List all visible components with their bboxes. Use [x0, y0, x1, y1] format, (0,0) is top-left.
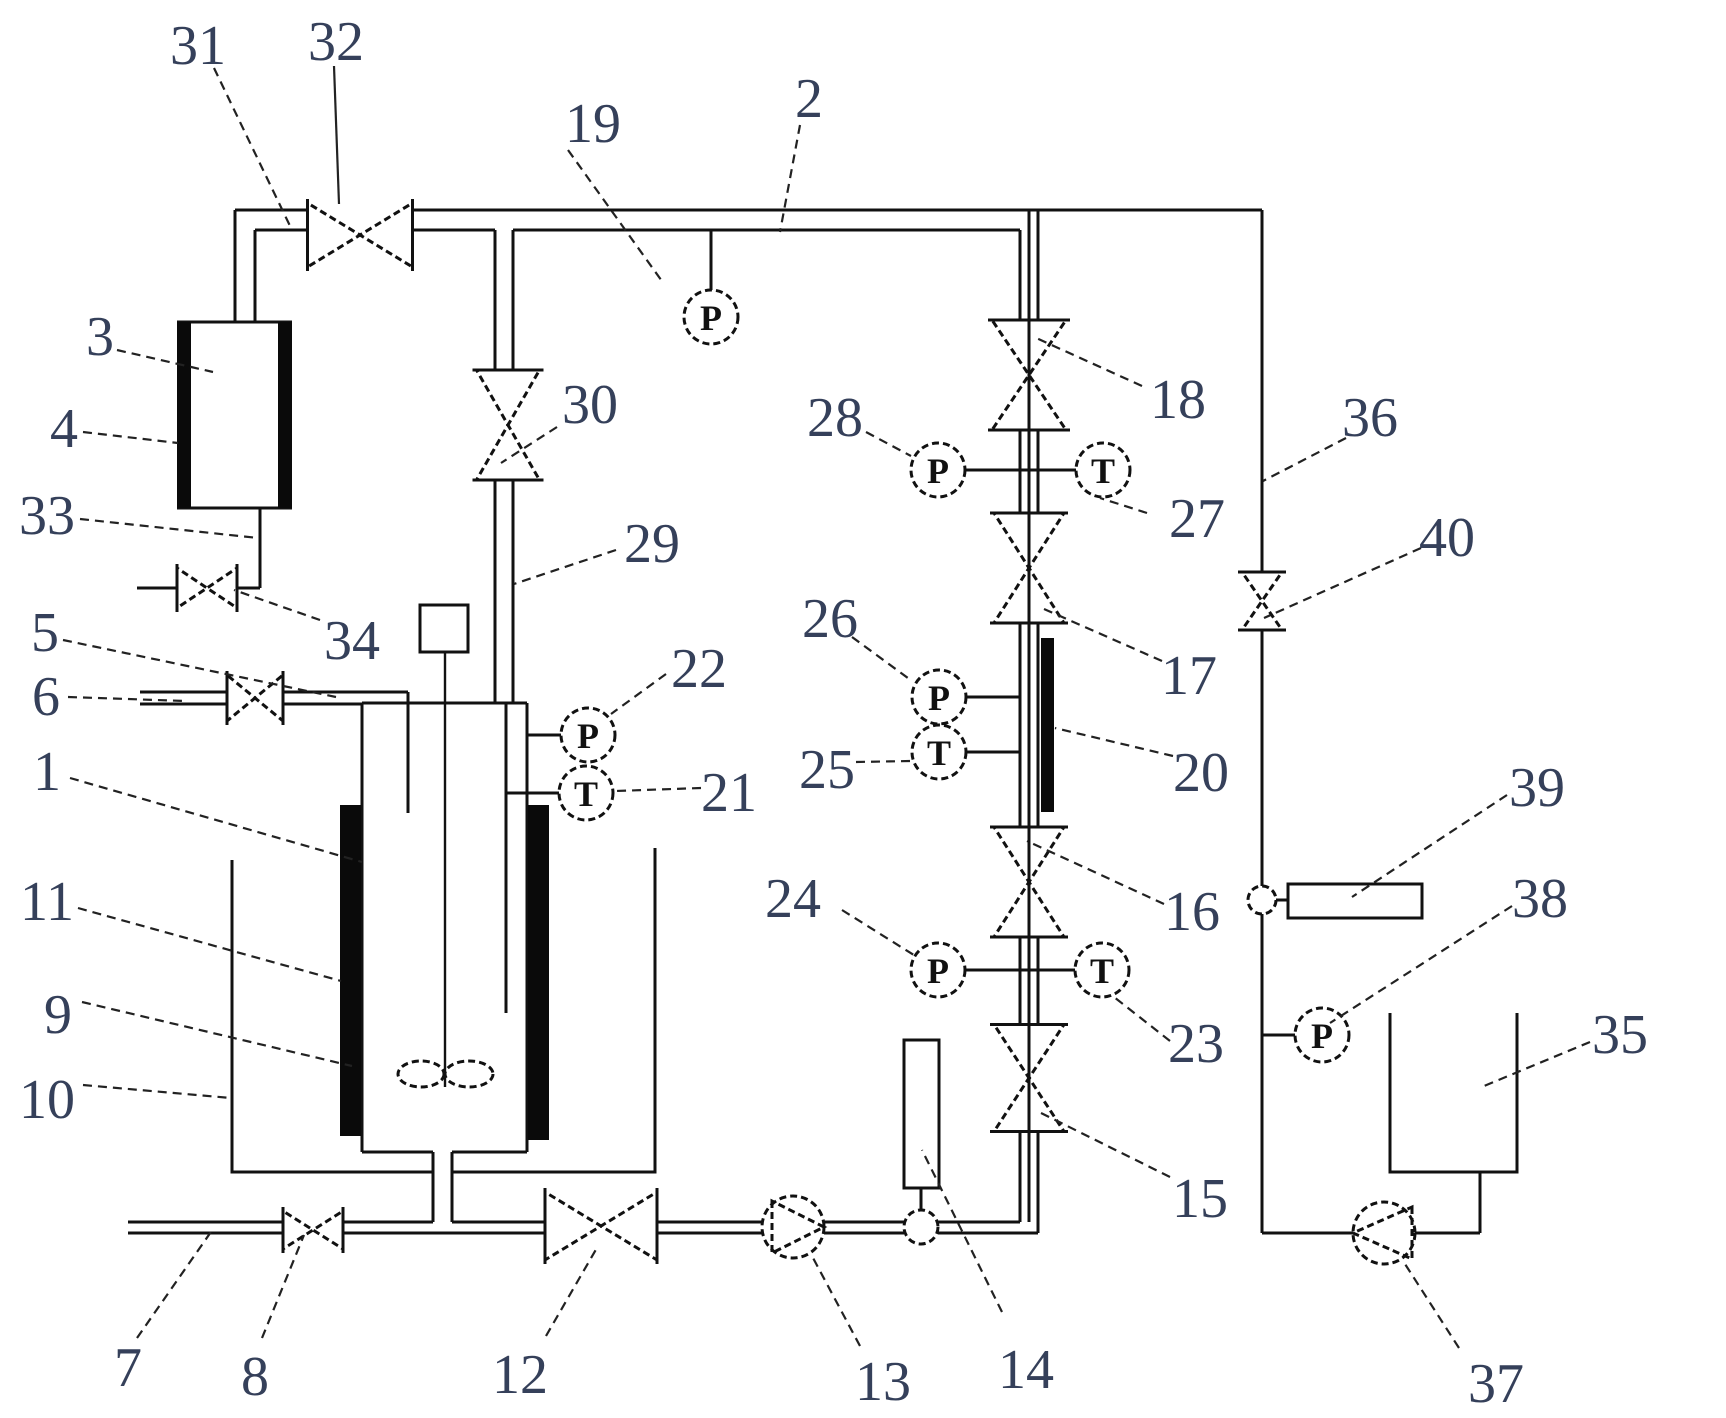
vessel-3-wall-left — [177, 322, 191, 508]
ref-label-7: 7 — [114, 1229, 213, 1399]
ref-label-14: 14 — [922, 1150, 1054, 1401]
temperature-gauge-21: T — [559, 766, 613, 820]
temperature-gauge-27: T — [1076, 443, 1130, 497]
leader-line-19 — [568, 150, 664, 284]
impeller-9-right-blade — [445, 1061, 493, 1087]
leader-line-16 — [1027, 841, 1164, 904]
label-text-40: 40 — [1419, 507, 1475, 569]
label-text-16: 16 — [1164, 881, 1220, 943]
valve-34 — [177, 564, 237, 612]
temperature-gauge-23: T — [1075, 943, 1129, 997]
valve-30 — [473, 370, 544, 480]
label-text-6: 6 — [32, 666, 60, 728]
pump-13 — [762, 1196, 824, 1258]
label-text-25: 25 — [799, 739, 855, 801]
ref-label-23: 23 — [1114, 997, 1224, 1075]
label-text-34: 34 — [324, 610, 380, 672]
label-text-20: 20 — [1173, 742, 1229, 804]
label-text-22: 22 — [671, 638, 727, 700]
water-bath-10 — [232, 848, 655, 1172]
ref-label-26: 26 — [802, 588, 912, 681]
reference-labels-layer: 3132192343334561119107812131429302221282… — [19, 11, 1648, 1415]
patent-piping-diagram: PPTPTPTPTP 31321923433345611191078121314… — [0, 0, 1726, 1418]
ref-label-1: 1 — [33, 741, 362, 862]
ref-label-25: 25 — [799, 739, 911, 801]
label-text-5: 5 — [31, 602, 59, 664]
ref-label-5: 5 — [31, 602, 336, 697]
pumps-layer — [762, 1196, 1415, 1264]
label-text-11: 11 — [20, 871, 74, 933]
leader-line-30 — [501, 427, 557, 463]
leader-line-4 — [83, 432, 178, 443]
ref-label-34: 34 — [234, 590, 380, 672]
ref-label-35: 35 — [1484, 1004, 1648, 1086]
label-text-4: 4 — [50, 398, 78, 460]
leader-line-12 — [546, 1246, 598, 1336]
ref-label-18: 18 — [1034, 337, 1206, 431]
leader-line-20 — [1055, 728, 1173, 756]
label-text-3: 3 — [86, 306, 114, 368]
label-text-14: 14 — [998, 1339, 1054, 1401]
valve-12 — [545, 1188, 657, 1264]
leader-line-38 — [1330, 906, 1512, 1023]
ref-label-32: 32 — [308, 11, 364, 204]
ref-label-28: 28 — [807, 387, 911, 456]
label-text-12: 12 — [492, 1344, 548, 1406]
temperature-gauge-27-letter: T — [1091, 451, 1115, 491]
leader-line-27 — [1100, 498, 1147, 513]
heating-band-20 — [1041, 638, 1054, 812]
ref-label-2: 2 — [780, 68, 823, 232]
label-text-31: 31 — [170, 15, 226, 77]
leader-line-39 — [1352, 795, 1507, 897]
label-text-23: 23 — [1168, 1013, 1224, 1075]
label-text-1: 1 — [33, 741, 61, 803]
ref-label-21: 21 — [616, 762, 757, 824]
label-text-13: 13 — [855, 1351, 911, 1413]
label-text-37: 37 — [1468, 1353, 1524, 1415]
label-text-29: 29 — [624, 513, 680, 575]
ref-label-16: 16 — [1027, 841, 1220, 943]
ref-label-11: 11 — [20, 871, 341, 981]
leader-line-17 — [1044, 609, 1162, 661]
label-text-27: 27 — [1169, 488, 1225, 550]
leader-line-25 — [856, 761, 911, 762]
leader-line-22 — [611, 674, 666, 714]
junction-line-36 — [1248, 886, 1276, 914]
pressure-gauge-19-letter: P — [700, 298, 722, 338]
ref-label-8: 8 — [241, 1235, 304, 1408]
ref-label-29: 29 — [514, 513, 680, 584]
ref-label-31: 31 — [170, 15, 291, 228]
label-text-28: 28 — [807, 387, 863, 449]
leader-line-28 — [866, 432, 911, 456]
ref-label-13: 13 — [812, 1256, 911, 1413]
label-text-18: 18 — [1150, 369, 1206, 431]
vessel-3-wall-right — [278, 322, 292, 508]
label-text-36: 36 — [1342, 387, 1398, 449]
leader-line-15 — [1037, 1111, 1170, 1177]
temperature-gauge-23-letter: T — [1090, 951, 1114, 991]
leader-line-31 — [214, 68, 291, 228]
label-text-9: 9 — [44, 984, 72, 1046]
ref-label-36: 36 — [1263, 387, 1398, 481]
stirrer-motor-box — [420, 605, 468, 652]
label-text-32: 32 — [308, 11, 364, 73]
ref-label-3: 3 — [86, 306, 213, 372]
leader-line-7 — [137, 1229, 213, 1338]
heating-band-11-left — [340, 805, 361, 1136]
buffer-vessel-3 — [177, 322, 292, 508]
junction-flowmeter-tap — [904, 1210, 938, 1244]
ref-label-27: 27 — [1100, 488, 1225, 550]
pressure-gauge-26: P — [912, 670, 966, 724]
pump-impeller-icon — [1353, 1207, 1412, 1259]
ref-label-24: 24 — [765, 868, 917, 957]
label-text-39: 39 — [1509, 757, 1565, 819]
ref-label-40: 40 — [1264, 507, 1475, 618]
valve-32 — [308, 199, 413, 271]
ref-label-37: 37 — [1405, 1264, 1524, 1415]
leader-line-35 — [1484, 1042, 1590, 1086]
valve-40 — [1238, 572, 1286, 630]
ref-label-30: 30 — [501, 374, 618, 463]
pump-impeller-icon — [772, 1201, 824, 1253]
leader-line-36 — [1263, 438, 1346, 481]
label-text-35: 35 — [1592, 1004, 1648, 1066]
pressure-gauge-22-letter: P — [577, 716, 599, 756]
pressure-gauge-28: P — [911, 443, 965, 497]
label-text-8: 8 — [241, 1346, 269, 1408]
label-text-38: 38 — [1512, 868, 1568, 930]
leader-line-6 — [68, 697, 186, 701]
leader-line-40 — [1264, 548, 1421, 618]
ref-label-12: 12 — [492, 1246, 598, 1406]
ref-label-9: 9 — [44, 984, 352, 1066]
leader-line-1 — [70, 778, 362, 862]
pressure-gauge-24: P — [911, 943, 965, 997]
collection-vessel-35 — [1390, 1013, 1517, 1172]
temperature-gauge-25-letter: T — [927, 733, 951, 773]
ref-label-17: 17 — [1044, 609, 1217, 707]
ref-label-19: 19 — [565, 93, 664, 284]
leader-line-33 — [80, 519, 258, 538]
pressure-gauge-24-letter: P — [927, 951, 949, 991]
label-text-2: 2 — [795, 68, 823, 130]
leader-line-24 — [842, 910, 917, 957]
label-text-19: 19 — [565, 93, 621, 155]
pressure-gauge-22: P — [561, 708, 615, 762]
ref-label-22: 22 — [611, 638, 727, 714]
leader-line-13 — [812, 1256, 860, 1346]
leader-line-32 — [334, 66, 339, 204]
pressure-gauge-26-letter: P — [928, 678, 950, 718]
label-text-26: 26 — [802, 588, 858, 650]
leader-line-9 — [82, 1002, 352, 1066]
valve-8 — [283, 1207, 343, 1253]
leader-line-21 — [616, 788, 701, 791]
leader-line-37 — [1405, 1264, 1459, 1348]
impeller-9-left-blade — [398, 1061, 444, 1087]
label-text-21: 21 — [701, 762, 757, 824]
label-text-30: 30 — [562, 374, 618, 436]
temperature-gauge-25: T — [912, 725, 966, 779]
instrument-39 — [1288, 884, 1422, 918]
stirred-reactor-1 — [340, 605, 549, 1152]
label-text-15: 15 — [1172, 1168, 1228, 1230]
label-text-7: 7 — [114, 1337, 142, 1399]
label-text-33: 33 — [19, 485, 75, 547]
pressure-gauge-19: P — [684, 290, 738, 344]
leader-line-23 — [1114, 997, 1170, 1041]
leader-line-29 — [514, 550, 616, 584]
pump-37 — [1353, 1202, 1415, 1264]
leader-line-34 — [234, 590, 320, 620]
ref-label-6: 6 — [32, 666, 186, 728]
ref-label-4: 4 — [50, 398, 178, 460]
label-text-17: 17 — [1161, 645, 1217, 707]
label-text-24: 24 — [765, 868, 821, 930]
leader-line-10 — [83, 1085, 231, 1098]
diagram-canvas: PPTPTPTPTP 31321923433345611191078121314… — [0, 0, 1726, 1418]
ref-label-15: 15 — [1037, 1111, 1228, 1230]
leader-line-3 — [117, 350, 213, 372]
ref-label-20: 20 — [1055, 728, 1229, 804]
temperature-gauge-21-letter: T — [574, 774, 598, 814]
leader-line-2 — [780, 125, 800, 232]
label-text-10: 10 — [19, 1069, 75, 1131]
leader-line-26 — [852, 637, 912, 681]
leader-line-5 — [63, 640, 336, 697]
flowmeter-14 — [904, 1040, 939, 1188]
heating-band-11-right — [528, 805, 549, 1140]
leader-line-11 — [78, 908, 341, 981]
ref-label-33: 33 — [19, 485, 258, 547]
piping-network — [128, 210, 1480, 1233]
ref-label-10: 10 — [19, 1069, 231, 1131]
pressure-gauge-28-letter: P — [927, 451, 949, 491]
